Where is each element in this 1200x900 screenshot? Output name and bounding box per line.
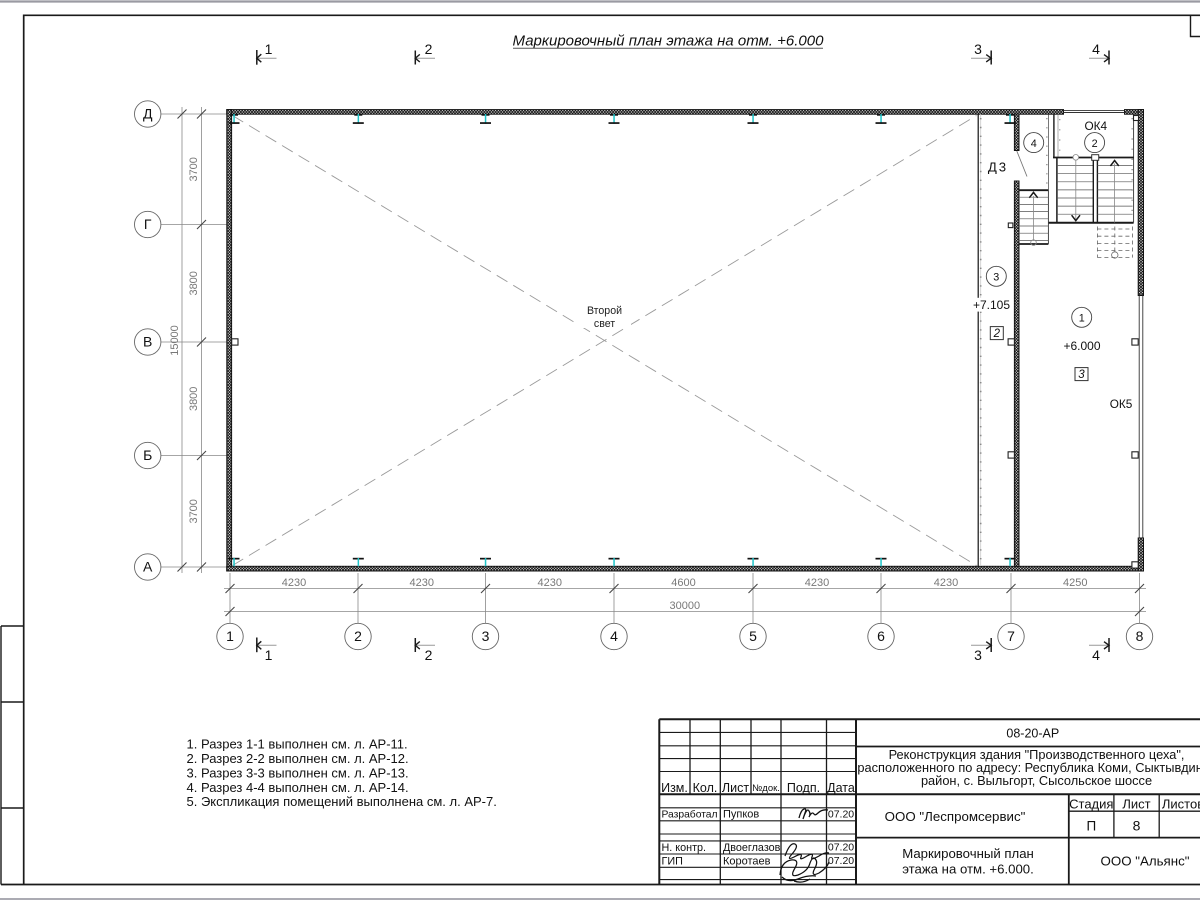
svg-text:1: 1 (1079, 313, 1085, 325)
svg-text:4. Разрез 4-4 выполнен см. л.: 4. Разрез 4-4 выполнен см. л. АР-14. (187, 780, 409, 795)
svg-text:этажа на отм. +6.000.: этажа на отм. +6.000. (902, 861, 1034, 876)
svg-text:+7.105: +7.105 (973, 298, 1010, 312)
svg-text:3: 3 (974, 41, 982, 57)
svg-text:Двоеглазов: Двоеглазов (723, 842, 781, 854)
svg-text:ООО "Леспромсервис": ООО "Леспромсервис" (885, 809, 1026, 824)
svg-text:В: В (143, 334, 152, 350)
svg-text:3: 3 (974, 647, 982, 663)
svg-text:4230: 4230 (538, 577, 562, 589)
svg-text:4250: 4250 (1063, 577, 1087, 589)
svg-text:Лист: Лист (722, 781, 749, 795)
svg-text:Стадия: Стадия (1069, 797, 1113, 812)
svg-text:2: 2 (993, 328, 1001, 340)
svg-text:Подп.: Подп. (787, 781, 820, 795)
svg-text:08-20-АР: 08-20-АР (1006, 727, 1059, 741)
svg-text:1: 1 (226, 628, 234, 644)
svg-text:4230: 4230 (410, 577, 434, 589)
svg-text:3: 3 (1078, 369, 1085, 381)
svg-text:Изм.: Изм. (661, 781, 688, 795)
svg-text:7: 7 (1007, 628, 1015, 644)
svg-text:3. Разрез 3-3 выполнен см. л.: 3. Разрез 3-3 выполнен см. л. АР-13. (187, 765, 409, 780)
svg-text:Дата: Дата (827, 781, 855, 795)
svg-text:8: 8 (1136, 628, 1144, 644)
svg-text:07.20: 07.20 (828, 809, 854, 821)
svg-text:1: 1 (265, 41, 273, 57)
svg-text:1: 1 (265, 647, 273, 663)
svg-text:3700: 3700 (188, 499, 200, 523)
svg-text:3800: 3800 (188, 271, 200, 295)
svg-text:4230: 4230 (934, 577, 958, 589)
svg-text:8: 8 (1133, 818, 1141, 834)
svg-text:Маркировочный план этажа на от: Маркировочный план этажа на отм. +6.000 (513, 33, 825, 50)
svg-text:2: 2 (1092, 138, 1098, 150)
svg-text:Кол.: Кол. (693, 781, 718, 795)
svg-text:Второй: Второй (587, 305, 622, 317)
svg-text:Д3: Д3 (988, 159, 1008, 174)
svg-text:Разработал: Разработал (662, 809, 718, 821)
svg-text:Пупков: Пупков (723, 809, 759, 821)
svg-text:ОК4: ОК4 (1084, 119, 1107, 133)
svg-text:1. Разрез 1-1 выполнен см. л.: 1. Разрез 1-1 выполнен см. л. АР-11. (187, 737, 408, 752)
svg-text:30000: 30000 (670, 600, 701, 612)
svg-text:4: 4 (610, 628, 618, 644)
svg-text:ООО "Альянс": ООО "Альянс" (1101, 854, 1190, 869)
svg-text:5: 5 (749, 628, 757, 644)
svg-text:Д: Д (143, 106, 153, 122)
svg-text:3: 3 (482, 628, 490, 644)
svg-text:2: 2 (354, 628, 362, 644)
svg-text:Б: Б (143, 447, 152, 463)
svg-text:5. Экспликация помещений выпол: 5. Экспликация помещений выполнена см. л… (187, 794, 497, 809)
svg-text:А: А (143, 559, 153, 575)
svg-text:07.20: 07.20 (828, 855, 854, 867)
svg-text:07.20: 07.20 (828, 842, 854, 854)
svg-text:3700: 3700 (188, 157, 200, 181)
svg-text:6: 6 (877, 628, 885, 644)
svg-text:2: 2 (425, 647, 433, 663)
svg-text:4: 4 (1092, 41, 1100, 57)
svg-text:3: 3 (993, 272, 999, 284)
svg-text:3800: 3800 (188, 387, 200, 411)
svg-text:район, с. Выльгорт, Сысольское: район, с. Выльгорт, Сысольское шоссе (921, 773, 1152, 788)
svg-text:Маркировочный план: Маркировочный план (902, 846, 1034, 861)
svg-text:4600: 4600 (671, 577, 695, 589)
svg-text:4230: 4230 (805, 577, 829, 589)
svg-text:Н. контр.: Н. контр. (662, 842, 707, 854)
svg-text:№док.: №док. (752, 783, 780, 794)
svg-text:Лист: Лист (1122, 797, 1150, 812)
svg-text:2: 2 (425, 41, 433, 57)
svg-text:4: 4 (1031, 138, 1037, 150)
svg-text:ОК5: ОК5 (1110, 397, 1133, 411)
svg-text:ГИП: ГИП (662, 855, 683, 867)
svg-text:свет: свет (594, 318, 615, 330)
svg-text:2. Разрез 2-2 выполнен см. л.: 2. Разрез 2-2 выполнен см. л. АР-12. (187, 751, 409, 766)
svg-text:4230: 4230 (282, 577, 306, 589)
svg-text:Коротаев: Коротаев (723, 855, 771, 867)
svg-text:15000: 15000 (169, 325, 181, 356)
svg-text:Г: Г (144, 216, 152, 232)
svg-text:4: 4 (1092, 647, 1100, 663)
svg-text:+6.000: +6.000 (1063, 339, 1100, 353)
svg-text:Листов: Листов (1162, 797, 1200, 812)
svg-text:П: П (1086, 819, 1096, 834)
